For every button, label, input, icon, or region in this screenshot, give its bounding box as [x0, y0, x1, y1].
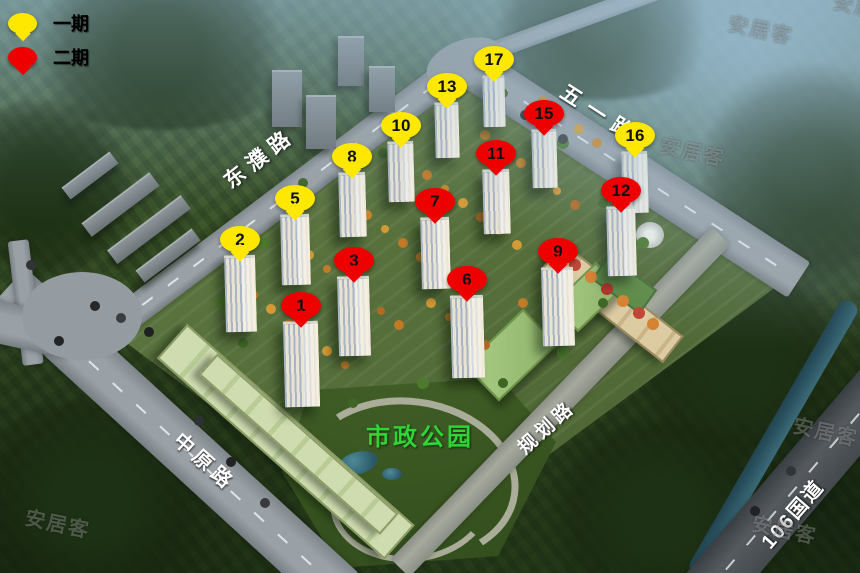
building-number: 10 [392, 116, 411, 136]
building-marker-15[interactable]: 15 [524, 100, 564, 127]
park-label: 市政公园 [366, 417, 474, 452]
city-building [306, 95, 336, 149]
building-number: 1 [296, 296, 305, 316]
cars [0, 0, 6, 6]
aerial-site-map: 东濮路五一路中原路规划路106国道 市政公园 12356789101112131… [0, 0, 860, 573]
legend-label: 二期 [53, 44, 89, 70]
residential-tower [282, 321, 319, 408]
phase2-marker-icon [8, 47, 37, 68]
fountain-plaza [636, 222, 664, 248]
building-marker-13[interactable]: 13 [427, 73, 467, 100]
building-marker-9[interactable]: 9 [538, 238, 578, 265]
legend-item-phase2: 二期 [8, 40, 89, 74]
building-marker-3[interactable]: 3 [334, 247, 374, 274]
residential-tower [449, 295, 484, 379]
legend-item-phase1: 一期 [8, 6, 89, 40]
residential-tower [223, 255, 256, 333]
building-number: 5 [290, 189, 299, 209]
building-number: 16 [626, 126, 645, 146]
residential-tower [434, 102, 459, 159]
building-number: 3 [349, 251, 358, 271]
building-number: 12 [612, 181, 631, 201]
building-marker-11[interactable]: 11 [476, 140, 516, 167]
building-number: 9 [553, 242, 562, 262]
residential-tower [531, 129, 558, 189]
building-number: 15 [535, 104, 554, 124]
building-marker-16[interactable]: 16 [615, 122, 655, 149]
building-marker-10[interactable]: 10 [381, 112, 421, 139]
city-building [338, 36, 364, 86]
building-marker-8[interactable]: 8 [332, 143, 372, 170]
building-number: 7 [430, 192, 439, 212]
city-building [272, 70, 302, 127]
building-marker-1[interactable]: 1 [281, 292, 321, 319]
road-junction [22, 272, 142, 360]
building-number: 6 [462, 270, 471, 290]
residential-tower [280, 214, 311, 286]
residential-tower [387, 141, 415, 203]
building-marker-6[interactable]: 6 [447, 266, 487, 293]
watermark: 安居客 [726, 7, 797, 49]
park-pond [382, 468, 402, 480]
watermark: 安居客 [831, 0, 860, 28]
residential-tower [337, 276, 371, 357]
building-marker-7[interactable]: 7 [415, 188, 455, 215]
residential-tower [541, 267, 575, 347]
residential-tower [338, 172, 367, 238]
building-marker-2[interactable]: 2 [220, 226, 260, 253]
city-building [369, 66, 395, 112]
building-number: 8 [347, 147, 356, 167]
building-marker-17[interactable]: 17 [474, 46, 514, 73]
legend-label: 一期 [53, 10, 89, 36]
building-marker-12[interactable]: 12 [601, 177, 641, 204]
building-marker-5[interactable]: 5 [275, 185, 315, 212]
residential-tower [606, 206, 637, 277]
residential-tower [482, 169, 511, 235]
building-number: 17 [485, 50, 504, 70]
building-number: 11 [487, 144, 505, 164]
residential-tower [482, 75, 505, 128]
residential-tower [420, 217, 451, 290]
phase-legend: 一期 二期 [8, 6, 89, 74]
building-number: 2 [235, 230, 244, 250]
phase1-marker-icon [8, 13, 37, 34]
building-number: 13 [438, 77, 457, 97]
